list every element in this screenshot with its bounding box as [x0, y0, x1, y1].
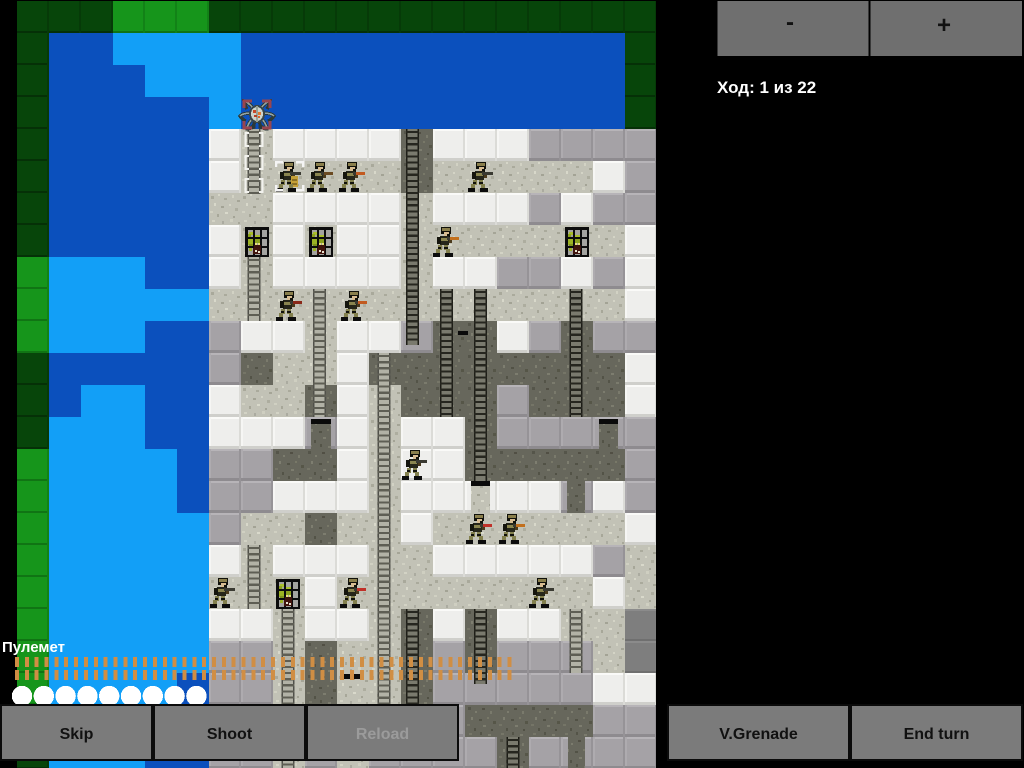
svg-text:Пулемет: Пулемет: [2, 639, 65, 656]
svg-text:V.Grenade: V.Grenade: [719, 726, 798, 743]
svg-text:End turn: End turn: [904, 726, 970, 743]
svg-text:Shoot: Shoot: [207, 726, 253, 743]
svg-text:+: +: [937, 12, 951, 39]
svg-text:-: -: [786, 9, 794, 36]
svg-text:Skip: Skip: [60, 726, 94, 743]
svg-text:Ход: 1 из 22: Ход: 1 из 22: [717, 78, 816, 97]
svg-text:Reload: Reload: [356, 726, 409, 743]
